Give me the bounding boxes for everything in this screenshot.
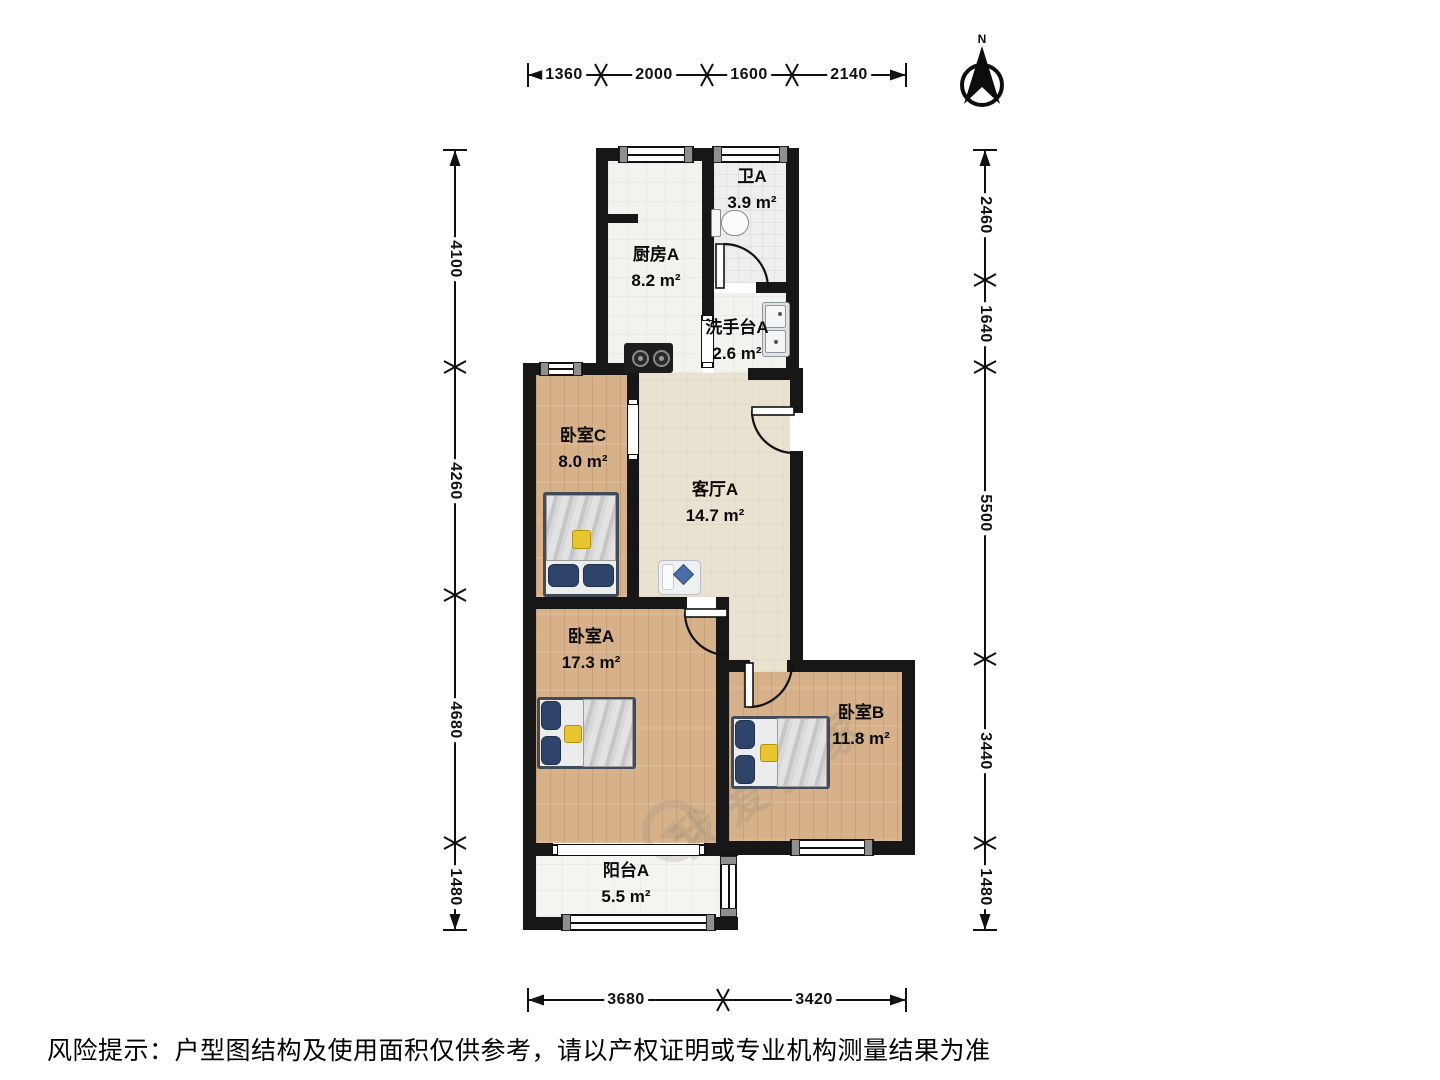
wall [902, 660, 915, 855]
window-bedroom-c-top [539, 362, 583, 376]
room-area: 14.7 m² [686, 503, 745, 529]
balcony-sliding-door [552, 844, 705, 856]
room-label-washstand: 洗手台A 2.6 m² [705, 315, 768, 367]
room-area: 2.6 m² [705, 341, 768, 367]
dim-label-left-2: 4260 [446, 459, 464, 503]
room-label-kitchen: 厨房A 8.2 m² [631, 242, 680, 294]
room-label-bathroom: 卫A 3.9 m² [727, 164, 776, 216]
room-name: 卧室B [832, 700, 890, 726]
window-balcony-bottom [561, 914, 716, 931]
dim-label-right-1: 2460 [976, 193, 994, 237]
bed-bedroom-a [537, 697, 636, 769]
dim-label-top-2: 2000 [632, 66, 676, 84]
disclaimer-text: 风险提示：户型图结构及使用面积仅供参考，请以产权证明或专业机构测量结果为准 [47, 1031, 991, 1067]
wall [790, 451, 803, 672]
dim-label-top-4: 2140 [827, 66, 871, 84]
window-bedroom-b-bottom [790, 839, 874, 856]
floor-plan-page: { "compass": { "label": "N" }, "rooms": … [0, 0, 1440, 1080]
dim-label-top-3: 1600 [727, 66, 771, 84]
compass-north-label: N [978, 32, 987, 46]
room-floor-bedroom-b-doorway [750, 660, 787, 672]
room-name: 阳台A [601, 858, 650, 884]
wall [790, 373, 803, 413]
dim-label-right-2: 1640 [976, 302, 994, 346]
dim-label-right-5: 1480 [976, 865, 994, 909]
dimension-line-bottom [528, 988, 906, 1012]
wall [787, 660, 915, 672]
room-name: 卫A [727, 164, 776, 190]
wall [716, 597, 729, 856]
bedroom-c-doorway [627, 399, 639, 460]
dim-label-bottom-1: 3680 [604, 991, 648, 1009]
room-name: 卧室C [558, 423, 607, 449]
dim-label-right-4: 3440 [976, 729, 994, 773]
dim-label-left-1: 4100 [446, 237, 464, 281]
room-name: 客厅A [686, 477, 745, 503]
sofa-icon [658, 560, 701, 595]
room-floor-living-passage [729, 597, 790, 660]
room-label-bedroom-a: 卧室A 17.3 m² [562, 624, 621, 676]
room-name: 厨房A [631, 242, 680, 268]
room-area: 8.0 m² [558, 449, 607, 475]
wall [523, 363, 536, 930]
north-needle-icon [964, 46, 1000, 104]
wall [596, 148, 608, 373]
compass: N [962, 32, 1002, 105]
wall [523, 597, 687, 609]
wall [713, 917, 738, 930]
room-label-bedroom-b: 卧室B 11.8 m² [832, 700, 890, 752]
room-label-living: 客厅A 14.7 m² [686, 477, 745, 529]
room-area: 3.9 m² [727, 190, 776, 216]
window-bathroom-top [712, 146, 789, 163]
room-area: 8.2 m² [631, 268, 680, 294]
dim-label-top-1: 1360 [542, 66, 586, 84]
window-kitchen-top [618, 146, 694, 163]
dim-label-right-3: 5500 [976, 491, 994, 535]
bed-bedroom-b [731, 716, 830, 789]
window-balcony-right [720, 855, 737, 918]
room-label-balcony: 阳台A 5.5 m² [601, 858, 650, 910]
room-area: 17.3 m² [562, 650, 621, 676]
wall [627, 458, 639, 609]
room-area: 11.8 m² [832, 726, 890, 752]
room-name: 卧室A [562, 624, 621, 650]
dim-label-left-3: 4680 [446, 698, 464, 742]
room-name: 洗手台A [705, 315, 768, 341]
dimension-line-right [973, 150, 997, 930]
dim-label-bottom-2: 3420 [792, 991, 836, 1009]
room-label-bedroom-c: 卧室C 8.0 m² [558, 423, 607, 475]
floor-plan-canvas: 我爱我家 [0, 0, 1440, 1080]
stove-icon [624, 343, 673, 373]
wall [608, 214, 638, 223]
room-area: 5.5 m² [601, 884, 650, 910]
dim-label-left-4: 1480 [446, 865, 464, 909]
bed-bedroom-c [543, 492, 619, 597]
